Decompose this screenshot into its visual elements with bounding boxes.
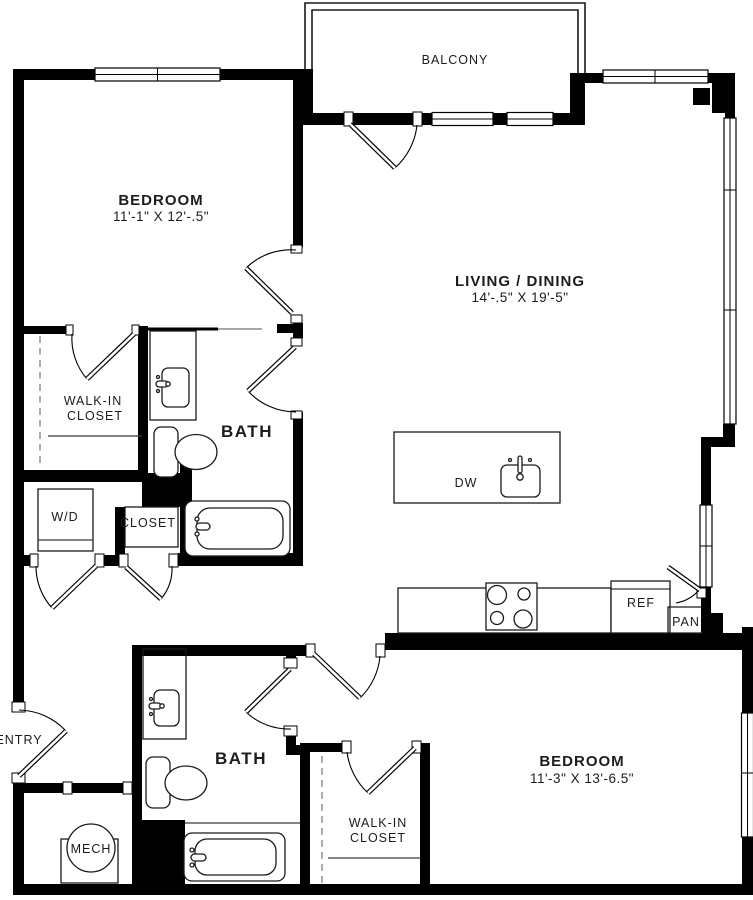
walk-in-closet-bottom-label-2: CLOSET xyxy=(350,831,406,845)
walk-in-closet-top-label-2: CLOSET xyxy=(67,409,123,423)
living-dining-dimensions: 14'-.5" X 19'-5" xyxy=(471,290,568,305)
walk-in-closet-top-label-1: WALK-IN xyxy=(64,394,123,408)
window-balcony-wall-b xyxy=(507,113,553,126)
column-post xyxy=(693,88,710,105)
window-top-right xyxy=(603,70,708,83)
tub-faucet-dot xyxy=(190,848,194,852)
living-dining-label: LIVING / DINING xyxy=(455,273,585,290)
window-kitchen-right xyxy=(700,505,712,587)
faucet-dot xyxy=(509,459,512,462)
bedroom-top-label: BEDROOM xyxy=(118,192,203,209)
floor-plan-svg: BALCONY BEDROOM 11'-1" X 12'-.5" LIVING … xyxy=(0,0,753,900)
island-faucet xyxy=(517,474,523,480)
tub-faucet xyxy=(196,523,210,530)
tub-faucet-dot xyxy=(195,517,199,521)
faucet xyxy=(160,704,164,708)
pantry-label: PAN xyxy=(672,615,700,629)
mech-label: MECH xyxy=(71,842,112,856)
faucet-dot xyxy=(150,698,153,701)
tub-faucet xyxy=(191,854,206,861)
entry-label: ENTRY xyxy=(0,733,43,747)
faucet-dot xyxy=(529,459,532,462)
balcony-label: BALCONY xyxy=(422,53,489,67)
tub-faucet-dot xyxy=(190,863,194,867)
mech-door-jamb xyxy=(63,782,72,794)
faucet xyxy=(166,382,170,386)
mech-door-jamb xyxy=(123,782,132,794)
window-right-living xyxy=(724,118,736,424)
bath-top-label: BATH xyxy=(221,422,273,441)
bedroom-bottom-dimensions: 11'-3" X 13'-6.5" xyxy=(530,771,634,786)
window-balcony-wall-a xyxy=(432,113,493,126)
dishwasher-label: DW xyxy=(455,476,478,490)
toilet-bowl xyxy=(165,766,207,800)
refrigerator-label: REF xyxy=(627,596,655,610)
island-faucet xyxy=(518,456,522,473)
bath-bottom-label: BATH xyxy=(215,749,267,768)
faucet-dot xyxy=(150,713,153,716)
hall-closet-label: CLOSET xyxy=(120,516,176,530)
window-bedroom-top xyxy=(95,68,220,81)
tub-faucet-dot xyxy=(195,532,199,536)
bedroom-top-dimensions: 11'-1" X 12'-.5" xyxy=(113,209,209,224)
faucet-dot xyxy=(157,390,160,393)
background xyxy=(0,0,753,900)
bedroom-bottom-label: BEDROOM xyxy=(539,753,624,770)
walk-in-closet-bottom-label-1: WALK-IN xyxy=(349,816,408,830)
faucet-dot xyxy=(157,376,160,379)
floor-plan-page: BALCONY BEDROOM 11'-1" X 12'-.5" LIVING … xyxy=(0,0,753,900)
toilet-bowl xyxy=(175,435,217,470)
window-bedroom-bottom xyxy=(742,713,753,837)
laundry-label: W/D xyxy=(51,510,78,524)
